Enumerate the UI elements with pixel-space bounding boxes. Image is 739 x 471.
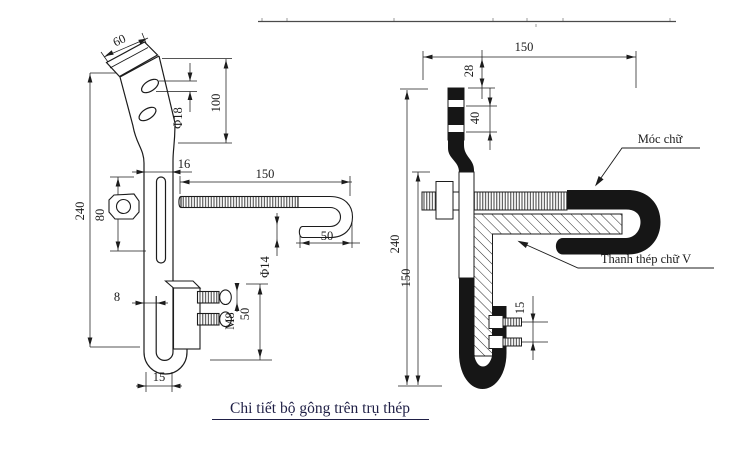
caption: Chi tiết bộ gông trên trụ thép — [212, 400, 429, 420]
strap-black-seg-2 — [448, 107, 464, 125]
strap-black-seg-1 — [448, 88, 464, 100]
right-view-dim-texts: 150 28 40 240 150 15 Móc chữ Thanh thép … — [388, 40, 691, 314]
dim-plate-height: 50 — [238, 308, 252, 321]
dim-bolt-length-left: 150 — [256, 167, 275, 181]
label-hook: Móc chữ — [638, 132, 684, 146]
dim-top-offset: 28 — [462, 65, 476, 78]
bracket-hole-bottom — [137, 105, 158, 124]
bracket-top-tab — [107, 42, 158, 77]
dim-hole-spacing: 40 — [468, 112, 482, 125]
dim-overall-height-right: 240 — [388, 235, 402, 254]
dim-lower-height: 150 — [399, 269, 413, 288]
dim-hook-return: 50 — [321, 229, 334, 243]
technical-drawing-page: 60 Φ18 100 240 80 16 150 50 Φ14 8 M8 50 … — [0, 0, 739, 471]
caption-text: Chi tiết bộ gông trên trụ thép — [230, 400, 410, 417]
dim-bolt-spacing: 15 — [513, 302, 527, 315]
dim-upper-height: 100 — [209, 94, 223, 113]
left-view-hex-nut — [109, 194, 139, 219]
dim-bar-width: 16 — [178, 157, 191, 171]
bracket-slot — [157, 177, 166, 263]
dim-top-length: 150 — [515, 40, 534, 54]
cropped-top-edge — [258, 18, 676, 27]
technical-drawing-canvas: 60 Φ18 100 240 80 16 150 50 Φ14 8 M8 50 … — [0, 0, 739, 471]
dim-overall-height-left: 240 — [73, 202, 87, 221]
rod-nut — [436, 182, 453, 220]
dim-slot-length: 80 — [93, 209, 107, 222]
dim-rod-dia: Φ14 — [258, 255, 272, 277]
dim-thickness: 8 — [114, 290, 120, 304]
bracket-hole-top — [139, 77, 160, 96]
dim-foot-width: 15 — [153, 370, 166, 384]
dim-bolt-thread: M8 — [223, 312, 237, 329]
strap-black-seg-3 — [448, 132, 464, 140]
label-v-bar: Thanh thép chữ V — [601, 252, 691, 266]
dim-hole-dia: Φ18 — [171, 107, 185, 129]
strap-curve — [448, 140, 474, 172]
right-view-assembly — [422, 88, 661, 389]
dim-tab-width: 60 — [111, 31, 128, 49]
plate-bolt-top — [198, 290, 232, 305]
left-view-bolt-plate — [166, 281, 232, 349]
